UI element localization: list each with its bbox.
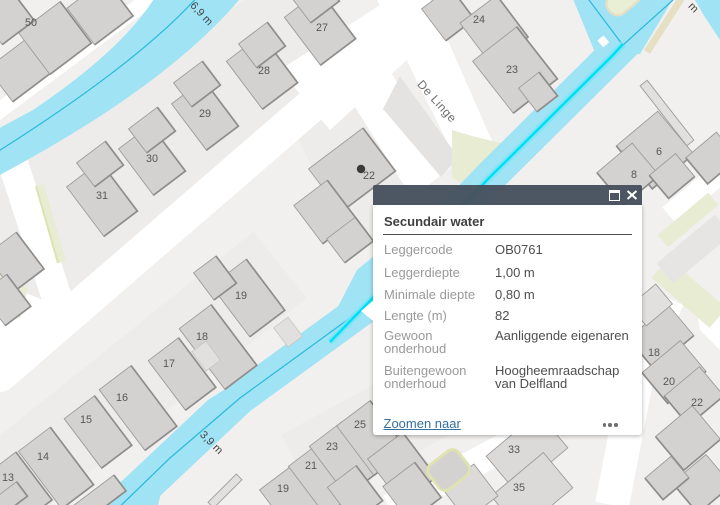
svg-text:33: 33 [508, 444, 520, 456]
svg-text:15: 15 [80, 414, 92, 426]
svg-text:35: 35 [513, 482, 525, 494]
svg-text:14: 14 [37, 451, 49, 463]
svg-text:28: 28 [258, 65, 270, 77]
svg-text:22: 22 [363, 170, 375, 182]
svg-text:30: 30 [146, 153, 158, 165]
svg-text:24: 24 [473, 14, 485, 26]
svg-text:6: 6 [656, 146, 662, 158]
svg-text:27: 27 [316, 22, 328, 34]
svg-text:21: 21 [305, 460, 317, 472]
svg-text:25: 25 [354, 419, 366, 431]
svg-text:17: 17 [163, 358, 175, 370]
svg-text:23: 23 [506, 64, 518, 76]
svg-text:22: 22 [691, 397, 703, 409]
svg-text:8: 8 [631, 169, 637, 181]
svg-text:29: 29 [199, 108, 211, 120]
svg-text:50: 50 [25, 17, 37, 29]
svg-text:19: 19 [235, 290, 247, 302]
svg-text:18: 18 [196, 331, 208, 343]
svg-text:31: 31 [96, 190, 108, 202]
svg-text:13: 13 [2, 472, 14, 484]
svg-text:20: 20 [663, 376, 675, 388]
svg-text:19: 19 [277, 483, 289, 495]
svg-text:16: 16 [116, 392, 128, 404]
svg-text:18: 18 [648, 347, 660, 359]
svg-text:23: 23 [326, 441, 338, 453]
